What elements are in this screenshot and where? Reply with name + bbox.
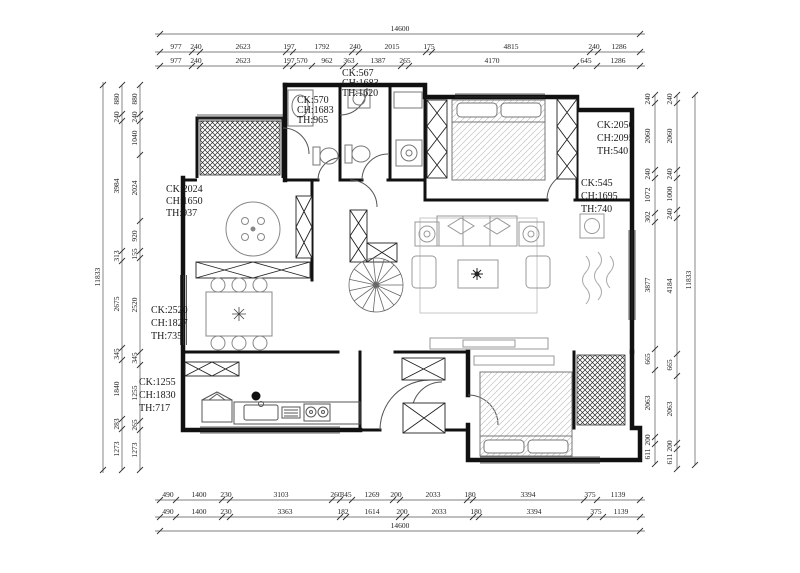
dim-value: 1273 <box>112 441 121 456</box>
room-label-th: TH:1620 <box>342 88 378 99</box>
dim-value: 155 <box>130 248 139 260</box>
room-label-ck: CK:2050 <box>597 120 634 131</box>
room-label-th: TH:937 <box>166 208 197 219</box>
spiral-fan <box>349 258 403 312</box>
kitchen <box>202 392 360 425</box>
round-table <box>226 202 280 256</box>
dim-value: 345 <box>112 348 121 360</box>
dim-value: 490 <box>162 507 174 516</box>
floorplan-viewport: 14600 977 240 2623 197 1792 240 2015 175… <box>0 0 800 573</box>
room-label-ck: CK:545 <box>581 178 613 189</box>
dim-value: 1840 <box>112 381 121 396</box>
dim-value: 3363 <box>278 507 293 516</box>
dim-value: 645 <box>580 56 592 65</box>
bedroom-bottom <box>474 356 572 456</box>
dining-set <box>206 278 272 350</box>
dim-value: 375 <box>590 507 602 516</box>
dim-value: 1040 <box>130 130 139 145</box>
room-label-th: TH:717 <box>139 403 170 414</box>
dim-value: 240 <box>112 111 121 123</box>
chair <box>253 278 267 292</box>
chair <box>232 278 246 292</box>
cabinet-box <box>185 362 239 376</box>
dim-value: 1400 <box>192 507 207 516</box>
dim-top-row2: 977 240 2623 197 570 962 363 1387 265 41… <box>170 56 625 65</box>
chair <box>211 278 225 292</box>
sofa <box>437 216 517 246</box>
room-label-th: TH:735 <box>151 331 182 342</box>
dim-value: 3984 <box>112 178 121 193</box>
dim-value: 3394 <box>521 490 536 499</box>
dim-value: 1286 <box>611 56 626 65</box>
dim-value: 302 <box>643 211 652 223</box>
door-arc <box>350 180 377 207</box>
dim-value: 375 <box>584 490 596 499</box>
corner-unit <box>202 400 232 422</box>
dim-value: 240 <box>588 42 600 51</box>
dim-value: 1614 <box>365 507 380 516</box>
pot-icon <box>252 392 261 401</box>
dim-value: 200 <box>665 440 674 452</box>
room-label-ch: CH:1650 <box>166 196 203 207</box>
dim-value: 230 <box>220 490 232 499</box>
dim-left-inner: 880 240 1040 2024 920 155 2520 345 1255 … <box>130 93 139 457</box>
dim-value: 265 <box>130 419 139 431</box>
armchair <box>412 256 436 288</box>
dim-value: 240 <box>665 208 674 220</box>
dim-value: 2623 <box>236 42 251 51</box>
dim-value: 570 <box>296 56 308 65</box>
dim-value: 2063 <box>665 401 674 416</box>
cabinet-box <box>196 262 310 278</box>
cabinet-box <box>296 196 312 258</box>
dim-value: 1273 <box>130 442 139 457</box>
door-arc <box>318 158 340 180</box>
dim-bottom-total: 14600 <box>391 521 410 530</box>
dim-value: 490 <box>162 490 174 499</box>
room-label-ch: CH:1695 <box>581 191 618 202</box>
chair <box>211 336 225 350</box>
dim-value: 4170 <box>485 56 500 65</box>
dim-value: 283 <box>112 418 121 430</box>
dim-value: 265 <box>399 56 411 65</box>
dim-top-total: 14600 <box>391 24 410 33</box>
dim-value: 1400 <box>192 490 207 499</box>
dim-value: 2060 <box>665 128 674 143</box>
dim-value: 1387 <box>371 56 386 65</box>
dim-value: 345 <box>130 352 139 364</box>
dim-value: 977 <box>170 42 182 51</box>
dim-value: 200 <box>390 490 402 499</box>
living-room-set <box>412 214 614 349</box>
dim-value: 977 <box>170 56 182 65</box>
dim-value: 175 <box>423 42 435 51</box>
chair <box>253 336 267 350</box>
dim-value: 880 <box>130 93 139 105</box>
room-label-ch: CH:2095 <box>597 133 634 144</box>
dim-value: 240 <box>665 93 674 105</box>
dim-value: 363 <box>343 56 355 65</box>
dim-value: 197 <box>283 42 295 51</box>
dim-value: 1255 <box>130 385 139 400</box>
dim-value: 2063 <box>643 395 652 410</box>
dresser <box>474 356 554 365</box>
dim-value: 240 <box>190 42 202 51</box>
dim-value: 3394 <box>527 507 542 516</box>
dim-value: 2060 <box>643 128 652 143</box>
dim-value: 1000 <box>665 186 674 201</box>
dim-value: 1792 <box>315 42 330 51</box>
dim-value: 2623 <box>236 56 251 65</box>
pillow <box>457 103 497 117</box>
dim-right-total: 11833 <box>684 271 693 290</box>
chair <box>232 336 246 350</box>
dim-value: 3877 <box>643 277 652 292</box>
dim-value: 4815 <box>504 42 519 51</box>
bedroom-top <box>452 100 545 180</box>
dim-value: 240 <box>190 56 202 65</box>
dim-value: 3103 <box>274 490 289 499</box>
centerpiece-icon <box>232 307 246 321</box>
dim-right-inner: 240 2060 240 1072 302 3877 665 2063 200 … <box>643 93 652 459</box>
toilet-tank <box>313 147 320 165</box>
corner-hatch-area <box>577 355 625 425</box>
dim-value: 665 <box>643 353 652 365</box>
shelf <box>394 92 422 108</box>
toilet-bowl <box>320 148 338 164</box>
dim-value: 665 <box>665 359 674 371</box>
balcony-hatch-area <box>200 121 280 175</box>
sink <box>244 405 278 420</box>
dim-value: 230 <box>220 507 232 516</box>
dim-top-row1: 977 240 2623 197 1792 240 2015 175 4815 … <box>170 42 626 51</box>
dim-value: 962 <box>321 56 333 65</box>
dim-value: 1072 <box>643 187 652 202</box>
room-label-ch: CH:1830 <box>139 390 176 401</box>
toilet-tank <box>345 145 352 163</box>
dim-value: 180 <box>464 490 476 499</box>
dim-value: 880 <box>112 93 121 105</box>
dim-value: 2520 <box>130 297 139 312</box>
room-label-ck: CK:2520 <box>151 305 188 316</box>
dim-value: 4184 <box>665 278 674 293</box>
room-label-th: TH:540 <box>597 146 628 157</box>
sofa-pillow <box>448 218 474 234</box>
dim-value: 240 <box>643 93 652 105</box>
dim-value: 345 <box>340 490 352 499</box>
door-arc <box>362 154 388 180</box>
dim-value: 2015 <box>385 42 400 51</box>
room-label-th: TH:965 <box>297 115 328 126</box>
washer <box>396 140 422 166</box>
pillow <box>501 103 541 117</box>
dim-value: 2033 <box>432 507 447 516</box>
floorplan-drawing: 14600 977 240 2623 197 1792 240 2015 175… <box>0 0 800 573</box>
dim-value: 2675 <box>112 296 121 311</box>
dim-value: 313 <box>112 250 121 262</box>
room-label-th: TH:740 <box>581 204 612 215</box>
tv <box>463 340 515 347</box>
dim-value: 200 <box>643 434 652 446</box>
dim-left-total: 11833 <box>93 268 102 287</box>
dim-value: 2024 <box>130 180 139 195</box>
dim-value: 240 <box>349 42 361 51</box>
dim-value: 1286 <box>612 42 627 51</box>
dim-value: 182 <box>337 507 349 516</box>
dim-left-outer: 880 240 3984 313 2675 345 1840 283 1273 <box>112 93 121 456</box>
dim-value: 1139 <box>611 490 626 499</box>
dim-value: 240 <box>643 168 652 180</box>
dim-value: 240 <box>665 168 674 180</box>
room-label-ch: CH:1827 <box>151 318 188 329</box>
dim-value: 197 <box>283 56 295 65</box>
dim-value: 200 <box>396 507 408 516</box>
dim-value: 1139 <box>614 507 629 516</box>
stove <box>304 404 330 421</box>
pillow <box>484 440 524 453</box>
toilet-bowl <box>352 146 370 162</box>
table-star-icon <box>471 268 483 280</box>
washbasin-cabinet <box>580 214 604 238</box>
sofa-pillow <box>484 218 510 234</box>
washbasin <box>585 219 600 234</box>
curtain-waves <box>583 252 614 304</box>
dim-value: 920 <box>130 230 139 242</box>
dim-value: 1269 <box>365 490 380 499</box>
dim-value: 240 <box>130 111 139 123</box>
room-label-ck: CK:2024 <box>166 184 203 195</box>
dim-value: 180 <box>470 507 482 516</box>
dim-value: 2033 <box>426 490 441 499</box>
pillow <box>528 440 568 453</box>
dim-value: 611 <box>643 448 652 459</box>
cabinet-box <box>350 210 367 262</box>
dim-value: 611 <box>665 453 674 464</box>
armchair <box>526 256 550 288</box>
room-label-ck: CK:1255 <box>139 377 176 388</box>
dim-right-outer: 240 2060 240 1000 240 4184 665 2063 200 … <box>665 93 674 464</box>
